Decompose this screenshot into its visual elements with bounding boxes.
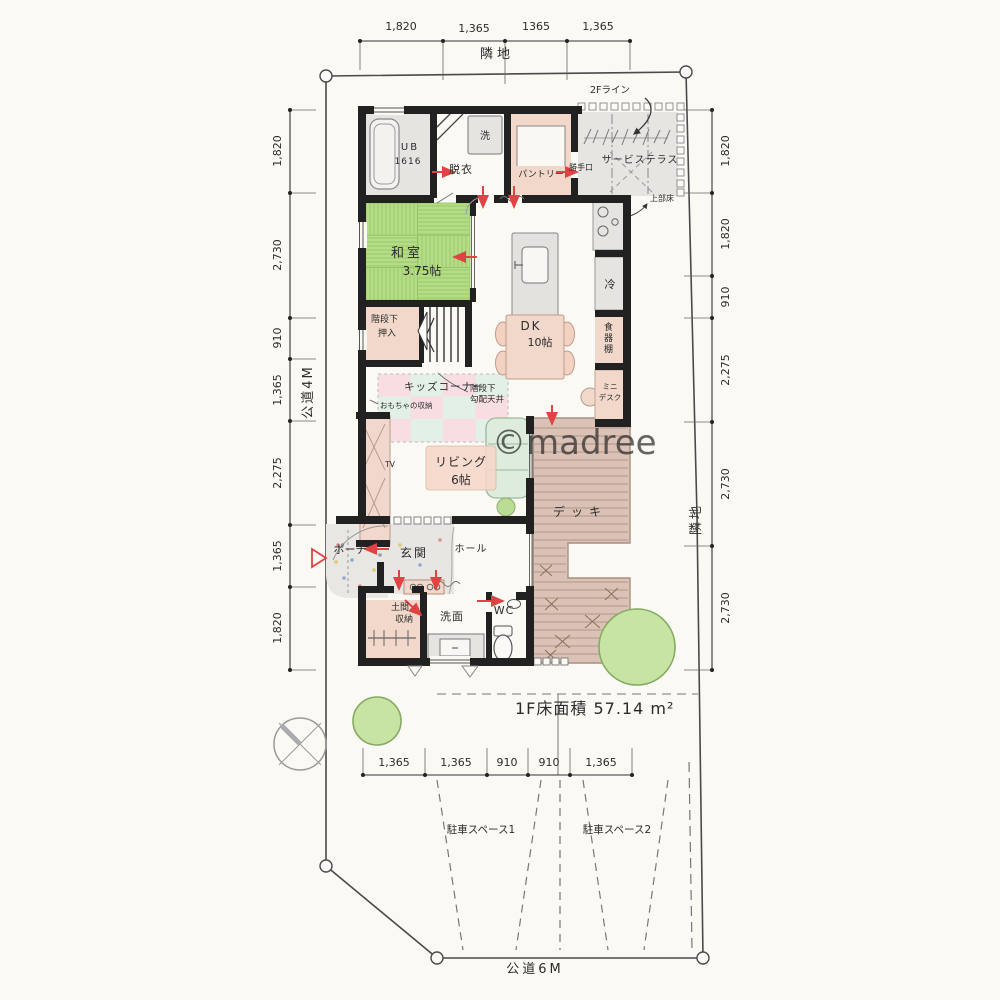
floor-plan-drawing: 隣地 隣地 公道4M 公道6M 1,820 1,365 1365 1,365 1… [0, 0, 1000, 1000]
label-understairs-2: 勾配天井 [470, 394, 504, 405]
compass-icon [274, 718, 326, 770]
label-2fline: 2Fライン [590, 85, 630, 96]
stairs [426, 307, 458, 362]
label-pantry: パントリー [518, 169, 563, 180]
dim-left-3: 1,365 [271, 374, 284, 406]
dim-left-0: 1,820 [271, 135, 284, 167]
label-ub: UB [401, 142, 419, 153]
terrace-floor [578, 112, 678, 196]
parking-lines [437, 694, 698, 950]
label-dressing: 脱衣 [449, 162, 473, 176]
dim-bottom-0: 1,365 [378, 756, 410, 769]
label-terrace: サービステラス [602, 154, 679, 166]
entrance-dotted-wall [394, 517, 451, 524]
dim-right-2: 910 [719, 287, 732, 308]
vent-mark [462, 666, 478, 677]
watermark: ©madree [492, 423, 657, 463]
label-doma-2: 収納 [395, 613, 413, 625]
upper-floor-leader [630, 204, 647, 216]
dim-left-1: 2,730 [271, 239, 284, 271]
dim-left-2: 910 [271, 328, 284, 349]
dim-bottom-2: 910 [497, 756, 518, 769]
dim-top-2: 1365 [522, 20, 550, 33]
label-hall: ホール [455, 543, 488, 555]
dim-left-6: 1,820 [271, 612, 284, 644]
dim-right-3: 2,275 [719, 354, 732, 386]
label-fridge: 冷 [605, 278, 616, 291]
dim-left-4: 2,275 [271, 457, 284, 489]
label-porch: ポーチ [334, 543, 367, 556]
label-minidesk-2: デスク [599, 392, 622, 402]
vent-mark [408, 666, 422, 676]
plant-icon [497, 498, 515, 516]
entrance-mark-icon [312, 549, 326, 567]
label-toy-note: おもちゃの収納 [380, 400, 433, 410]
label-stair-closet-2: 押入 [378, 327, 396, 339]
label-living-size: 6帖 [451, 472, 471, 487]
dim-right-5: 2,730 [719, 592, 732, 624]
label-laundry: 洗 [480, 130, 490, 142]
tree-icon [353, 697, 401, 745]
label-doma-1: 土間 [391, 601, 409, 613]
dim-left-5: 1,365 [271, 540, 284, 572]
label-living: リビング [435, 455, 487, 469]
parking-space-1-label: 駐車スペース1 [447, 823, 515, 836]
dim-right-0: 1,820 [719, 135, 732, 167]
label-dk-size: 10帖 [528, 336, 553, 349]
label-washroom: 洗面 [440, 610, 464, 623]
dim-top-3: 1,365 [582, 20, 614, 33]
label-cupboard: 食器棚 [601, 322, 614, 355]
dim-right-1: 1,820 [719, 218, 732, 250]
road-left-label: 公道4M [301, 365, 316, 419]
label-dk: DK [520, 319, 541, 333]
label-understairs-1: 階段下 [470, 383, 496, 394]
dim-bottom-3: 910 [539, 756, 560, 769]
dim-top-0: 1,820 [385, 20, 417, 33]
label-backdoor: 勝手口 [569, 162, 593, 172]
label-ub-size: 1616 [395, 157, 422, 167]
label-washitsu-size: 3.75帖 [403, 263, 442, 278]
floor-plan-canvas: 隣地 隣地 公道4M 公道6M 1,820 1,365 1365 1,365 1… [0, 0, 1000, 1000]
dim-right-4: 2,730 [719, 468, 732, 500]
floor-area-label: 1F床面積 57.14 m² [515, 699, 674, 718]
sink [522, 247, 548, 283]
neighbor-top-label: 隣地 [480, 46, 514, 62]
dim-top-1: 1,365 [458, 22, 490, 35]
kitchen-counter [593, 200, 625, 250]
label-entrance: 玄関 [400, 545, 428, 560]
label-stair-closet-1: 階段下 [371, 313, 398, 325]
label-minidesk-1: ミニ [603, 382, 618, 391]
tree-icon [599, 609, 675, 685]
dim-bottom-1: 1,365 [440, 756, 472, 769]
label-deck: デッキ [553, 504, 607, 519]
pantry-shelf [517, 126, 565, 166]
label-tv: TV [384, 460, 396, 469]
road-bottom-label: 公道6M [506, 962, 564, 977]
label-upper-floor: 上部床 [650, 193, 674, 203]
dim-bottom-4: 1,365 [585, 756, 617, 769]
label-wc: WC [494, 604, 515, 617]
parking-space-2-label: 駐車スペース2 [583, 823, 651, 836]
toilet [494, 635, 512, 661]
toy-leader [370, 400, 378, 404]
label-washitsu: 和室 [391, 245, 423, 261]
neighbor-right-label: 隣地 [688, 503, 704, 535]
